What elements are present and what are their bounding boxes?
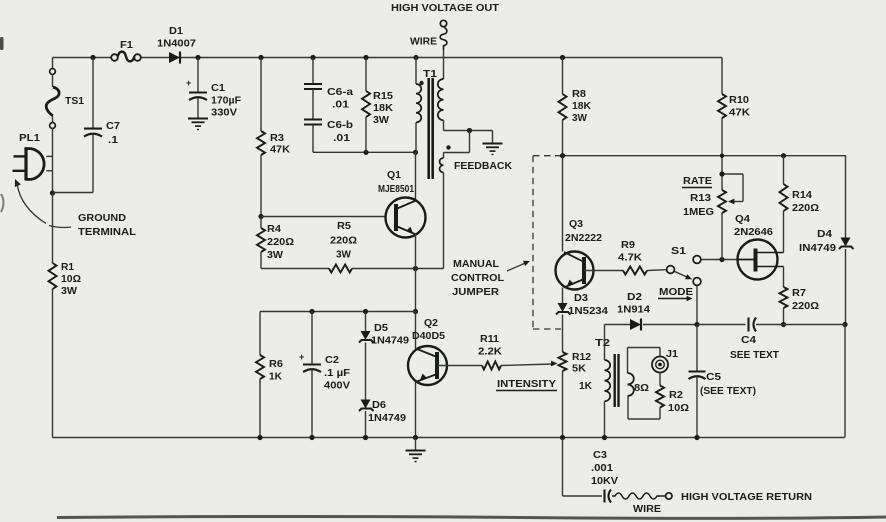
svg-text:F1: F1 [120,40,133,51]
svg-text:47K: 47K [270,145,291,156]
svg-text:D4: D4 [817,229,832,240]
svg-text:C6-b: C6-b [327,120,353,131]
svg-text:C5: C5 [706,372,721,383]
svg-text:D1: D1 [169,26,183,37]
svg-text:MJE8501: MJE8501 [378,184,414,195]
svg-text:3W: 3W [572,113,588,124]
svg-text:HIGH VOLTAGE OUT: HIGH VOLTAGE OUT [391,2,500,14]
svg-text:1N4749: 1N4749 [368,413,406,424]
svg-text:10Ω: 10Ω [668,403,689,414]
svg-text:1K: 1K [579,381,593,392]
svg-text:R10: R10 [729,95,749,106]
svg-text:R6: R6 [269,359,283,370]
svg-text:R4: R4 [267,224,281,235]
svg-text:1N5234: 1N5234 [568,306,608,317]
svg-text:+: + [186,78,191,88]
svg-text:1N914: 1N914 [617,305,650,316]
svg-text:8Ω: 8Ω [634,383,649,394]
svg-text:400V: 400V [324,381,350,392]
svg-text:3W: 3W [373,115,390,126]
svg-text:Q1: Q1 [387,170,401,181]
svg-text:R9: R9 [621,240,635,251]
svg-text:1N4007: 1N4007 [157,39,196,50]
svg-text:TS1: TS1 [65,96,84,107]
svg-text:C7: C7 [106,121,120,132]
svg-text:3W: 3W [267,250,284,261]
svg-text:C1: C1 [211,83,225,94]
svg-text:Q2: Q2 [424,318,438,329]
svg-text:220Ω: 220Ω [792,203,819,214]
svg-text:R3: R3 [270,133,284,144]
svg-text:R13: R13 [690,193,711,204]
svg-text:D40D5: D40D5 [412,331,445,342]
svg-text:4.7K: 4.7K [618,253,643,264]
svg-text:T2: T2 [595,338,611,349]
svg-text:+: + [299,352,304,362]
svg-text:R12: R12 [572,352,591,363]
svg-text:WIRE: WIRE [633,503,661,515]
svg-text:(SEE TEXT): (SEE TEXT) [700,386,756,397]
svg-text:D6: D6 [372,400,386,411]
svg-text:220Ω: 220Ω [792,301,819,312]
svg-text:MANUAL: MANUAL [453,259,499,270]
svg-text:JUMPER: JUMPER [452,287,500,298]
svg-text:D5: D5 [374,323,388,334]
svg-text:.001: .001 [591,463,613,474]
svg-text:10KV: 10KV [591,476,618,487]
svg-text:220Ω: 220Ω [330,236,357,247]
svg-text:2N2222: 2N2222 [565,233,602,244]
svg-text:TERMINAL: TERMINAL [78,227,136,238]
svg-text:S1: S1 [671,246,687,257]
svg-text:C3: C3 [593,450,607,461]
svg-text:Q3: Q3 [569,219,583,230]
svg-text:220Ω: 220Ω [267,237,294,248]
svg-text:.1 µF: .1 µF [324,368,350,379]
svg-text:WIRE: WIRE [410,36,437,48]
svg-text:D2: D2 [627,292,642,303]
svg-text:HIGH VOLTAGE RETURN: HIGH VOLTAGE RETURN [681,491,812,503]
svg-text:18K: 18K [373,103,394,114]
svg-text:330V: 330V [211,108,237,119]
svg-text:.1: .1 [108,135,119,146]
svg-text:10Ω: 10Ω [61,274,81,285]
svg-text:R5: R5 [337,221,351,232]
svg-text:.01: .01 [332,100,350,111]
svg-text:FEEDBACK: FEEDBACK [454,161,513,172]
svg-text:PL1: PL1 [19,133,40,144]
svg-text:R1: R1 [61,262,74,273]
svg-text:IN4749: IN4749 [799,243,836,254]
svg-text:C2: C2 [325,355,339,366]
svg-text:Q4: Q4 [735,214,750,225]
svg-text:170µF: 170µF [211,96,241,107]
svg-text:3W: 3W [61,286,78,297]
svg-text:T1: T1 [423,68,437,80]
svg-text:RATE: RATE [683,176,712,187]
svg-text:J1: J1 [666,349,678,360]
svg-text:SEE TEXT: SEE TEXT [730,350,779,361]
svg-text:MODE: MODE [659,287,693,298]
svg-text:1MEG: 1MEG [683,207,714,218]
svg-text:R14: R14 [792,190,812,201]
svg-text:1K: 1K [269,372,283,383]
svg-text:INTENSITY: INTENSITY [497,378,556,390]
svg-text:C6-a: C6-a [327,87,354,98]
svg-text:1N4749: 1N4749 [371,336,409,347]
svg-text:R8: R8 [572,89,586,100]
svg-text:R11: R11 [480,334,499,345]
svg-text:C4: C4 [741,335,756,346]
svg-text:5K: 5K [572,364,587,375]
svg-text:3W: 3W [336,250,352,261]
svg-text:2N2646: 2N2646 [734,227,773,238]
svg-text:R15: R15 [373,91,393,102]
svg-text:47K: 47K [729,108,751,119]
svg-text:R2: R2 [669,390,683,401]
svg-text:.01: .01 [333,133,351,144]
svg-text:18K: 18K [572,101,592,112]
svg-text:2.2K: 2.2K [478,347,503,358]
svg-text:CONTROL: CONTROL [451,273,504,284]
svg-text:D3: D3 [574,293,588,304]
svg-text:GROUND: GROUND [78,213,126,224]
svg-text:R7: R7 [792,288,806,299]
